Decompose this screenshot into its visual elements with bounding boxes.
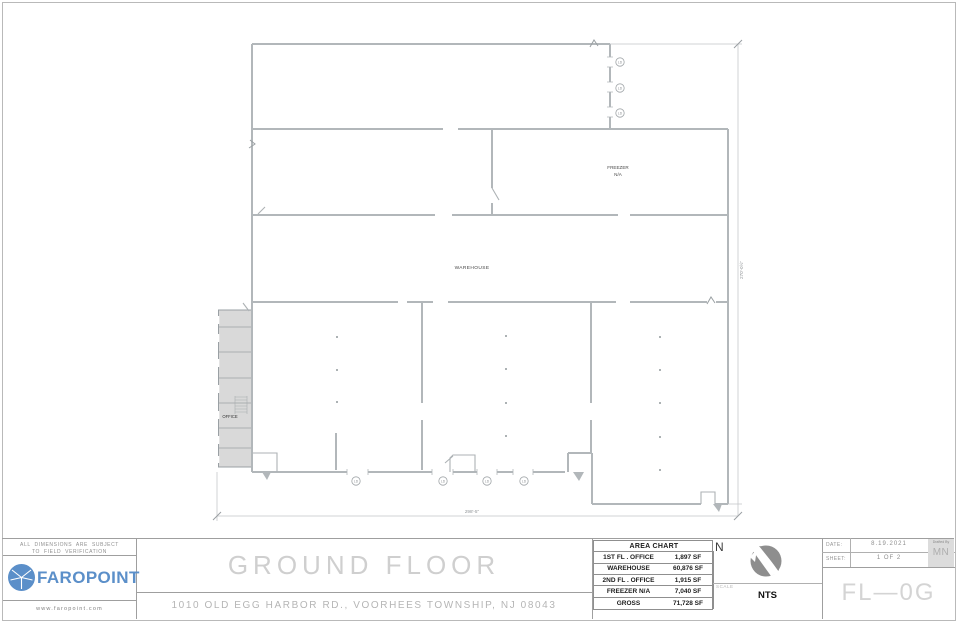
faropoint-logo: FAROPOINT [3,556,136,600]
area-row-label: WAREHOUSE [594,564,663,575]
column-grid [336,335,661,471]
drawing-title-cell: GROUND FLOOR [136,539,592,592]
bottom-dimension: 298'-5" [465,509,480,514]
drawing-sheet: LD LD LD LD LD LD LD FREEZER N/A WAREHOU… [0,0,960,621]
north-compass-icon [749,545,783,578]
right-dimension: 270'-0½" [738,261,744,279]
warehouse-label: WAREHOUSE [455,265,490,271]
door-swing-notches [262,472,722,512]
sheet-code-cell: FL—0G [822,567,955,619]
divider [850,538,851,567]
sheet-code: FL—0G [841,579,935,607]
office-label: OFFICE [222,414,238,419]
ld-label: LD [354,479,359,483]
ld-label: LD [522,479,527,483]
area-row-value: 71,728 SF [663,598,714,609]
website: www.faropoint.com [3,601,136,618]
dimension-lines [217,44,742,521]
office-area [217,310,252,467]
north-label: N [715,540,724,554]
drafted-by-initials: MN [928,547,954,558]
address-cell: 1010 OLD EGG HARBOR RD., VOORHEES TOWNSH… [136,592,592,619]
area-row-label: GROSS [594,598,663,609]
floor-plan: LD LD LD LD LD LD LD FREEZER N/A WAREHOU… [0,0,960,538]
area-chart-header: AREA CHART [594,541,714,552]
ld-label: LD [618,60,623,64]
exterior-interior-walls [252,44,728,504]
scale-value: NTS [713,590,822,601]
area-row-value: 1,915 SF [663,575,714,586]
disclaimer-line1: ALL DIMENSIONS ARE SUBJECT [20,542,119,548]
date-label: DATE: [826,542,842,548]
sheet-label: SHEET: [826,556,846,562]
ld-label: LD [618,86,623,90]
faropoint-logo-icon [7,563,36,592]
doors-vestibules [243,188,715,504]
area-row-label: 2ND FL . OFFICE [594,575,663,586]
area-row-label: FREEZER N/A [594,586,663,597]
faropoint-logo-text: FAROPOINT [37,568,140,588]
freezer-na-label: N/A [614,172,623,177]
area-chart-table: AREA CHART 1ST FL . OFFICE 1,897 SF WARE… [593,540,713,610]
drafted-by-label: Drafted By [928,540,954,544]
area-row-value: 1,897 SF [663,552,714,563]
sheet-value: 1 OF 2 [850,555,928,561]
drafted-by-box: Drafted By MN [928,539,954,567]
dimension-ticks [213,40,742,520]
break-symbols [249,40,715,304]
ld-label: LD [485,479,490,483]
ld-label: LD [618,111,623,115]
area-row-value: 60,876 SF [663,564,714,575]
area-row-label: 1ST FL . OFFICE [594,552,663,563]
drawing-title: GROUND FLOOR [228,550,500,581]
date-value: 8.19.2021 [850,541,928,547]
area-row-value: 7,040 SF [663,586,714,597]
freezer-label: FREEZER [607,165,629,170]
office-windows [217,316,219,463]
ld-label: LD [441,479,446,483]
loading-dock-markers [352,58,624,485]
scale-label: SCALE [716,584,734,589]
property-address: 1010 OLD EGG HARBOR RD., VOORHEES TOWNSH… [172,600,557,611]
